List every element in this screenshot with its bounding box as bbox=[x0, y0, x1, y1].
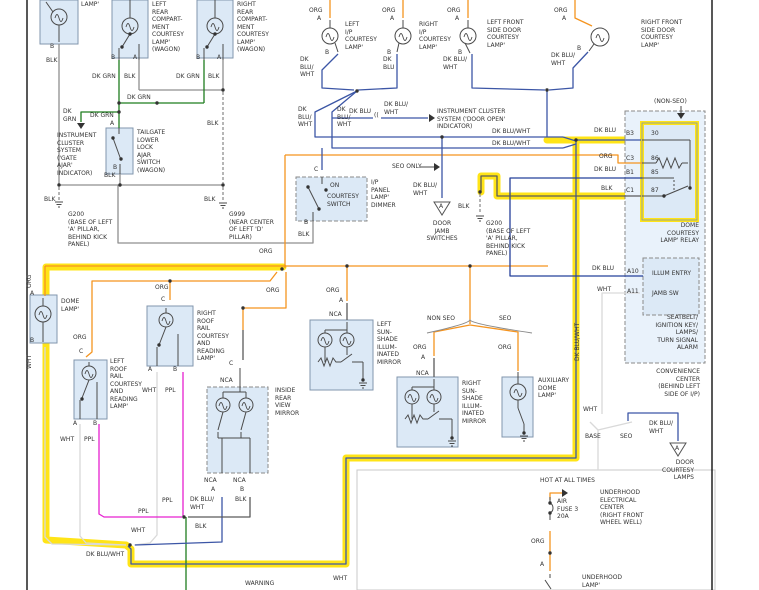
junction-dot bbox=[662, 194, 665, 197]
diagram-label: NON SEO bbox=[427, 315, 455, 323]
diagram-label: ORG bbox=[413, 344, 427, 352]
diagram-label: A bbox=[73, 420, 77, 428]
diagram-label: DOME LAMP' bbox=[61, 298, 79, 313]
diagram-label: 86 bbox=[651, 155, 659, 163]
diagram-label: BLK bbox=[235, 496, 246, 504]
diagram-label: A bbox=[439, 203, 443, 211]
diagram-label: B bbox=[325, 49, 329, 57]
diagram-label: BLK bbox=[601, 185, 612, 193]
diagram-label: C bbox=[79, 348, 83, 356]
arrow-icon bbox=[434, 163, 440, 171]
wire bbox=[590, 422, 598, 430]
junction-dot bbox=[80, 397, 83, 400]
diagram-label: A bbox=[148, 366, 152, 374]
diagram-label: AUXILIARY DOME LAMP' bbox=[538, 377, 569, 400]
component-internal bbox=[397, 43, 399, 52]
diagram-label: DK GRN bbox=[127, 94, 151, 102]
diagram-label: C bbox=[161, 296, 165, 304]
dashed-component-box bbox=[207, 387, 268, 473]
diagram-label: DK BLU/ WHT bbox=[384, 101, 408, 116]
diagram-label: C bbox=[229, 360, 233, 368]
diagram-label: WHT bbox=[26, 355, 34, 369]
wiring-diagram-canvas bbox=[0, 0, 759, 590]
blank-panel bbox=[357, 470, 715, 590]
diagram-label: A bbox=[317, 15, 321, 23]
diagram-label: RIGHT FRONT SIDE DOOR COURTESY LAMP' bbox=[641, 19, 682, 49]
diagram-label: UNDERHOOD LAMP' bbox=[582, 574, 622, 589]
diagram-label: BASE bbox=[585, 433, 601, 441]
diagram-label: ORG bbox=[599, 153, 613, 161]
junction-dot bbox=[213, 32, 216, 35]
diagram-label: B3 bbox=[626, 130, 634, 138]
junction-dot bbox=[345, 264, 348, 267]
diagram-label: RIGHT ROOF RAIL COURTESY AND READING LAM… bbox=[197, 310, 229, 363]
diagram-label: SEATBELT/ IGNITION KEY/ LAMPS/ TURN SIGN… bbox=[655, 314, 698, 352]
diagram-label: LEFT ROOF RAIL COURTESY AND READING LAMP… bbox=[110, 358, 142, 411]
diagram-label: NCA bbox=[416, 370, 429, 378]
dashed-component-box bbox=[643, 258, 699, 315]
arrow-icon bbox=[77, 123, 85, 129]
junction-dot bbox=[120, 45, 123, 48]
diagram-label: INSTRUMENT CLUSTER SYSTEM ('GATE AJAR' I… bbox=[57, 132, 96, 177]
wiring-diagram-page: LAMP'BBLKLEFT REAR COMPART- MENT COURTES… bbox=[0, 0, 759, 590]
junction-dot bbox=[155, 101, 158, 104]
diagram-label: B bbox=[240, 486, 244, 494]
junction-dot bbox=[361, 378, 364, 381]
diagram-label: B bbox=[111, 54, 115, 62]
diagram-label: B bbox=[577, 45, 581, 53]
diagram-label: BLK bbox=[207, 120, 218, 128]
diagram-label: (( bbox=[374, 112, 379, 120]
diagram-label: BLK bbox=[124, 73, 135, 81]
diagram-label: DK BLU bbox=[383, 56, 395, 71]
diagram-label: RIGHT REAR COMPART- MENT COURTESY LAMP' … bbox=[237, 1, 269, 54]
diagram-label: WHT bbox=[583, 406, 597, 414]
diagram-label: DK GRN bbox=[176, 73, 200, 81]
diagram-label: BLK bbox=[298, 231, 309, 239]
diagram-label: WARNING bbox=[245, 580, 274, 588]
diagram-label: A bbox=[217, 54, 221, 62]
diagram-label: I/P PANEL LAMP' DIMMER bbox=[371, 179, 396, 209]
arrow-icon bbox=[429, 114, 435, 122]
junction-dot bbox=[118, 183, 121, 186]
diagram-label: DK BLU/ WHT bbox=[300, 56, 314, 79]
diagram-label: 85 bbox=[651, 169, 659, 177]
component-internal bbox=[589, 44, 594, 51]
wire bbox=[285, 155, 642, 163]
diagram-label: C1 bbox=[626, 187, 634, 195]
diagram-label: BLK bbox=[195, 523, 206, 531]
diagram-label: ORG bbox=[326, 287, 340, 295]
diagram-label: DK BLU/ WHT bbox=[413, 182, 437, 197]
diagram-label: WHT bbox=[60, 436, 74, 444]
diagram-label: DK GRN bbox=[63, 108, 76, 123]
lamp-filament-icon bbox=[596, 35, 604, 42]
diagram-label: G200 (BASE OF LEFT 'A' PILLAR, BEHIND KI… bbox=[68, 211, 112, 249]
diagram-label: ILLUM ENTRY bbox=[652, 270, 691, 278]
junction-dot bbox=[221, 183, 224, 186]
junction-dot bbox=[182, 515, 185, 518]
junction-dot bbox=[168, 279, 171, 282]
diagram-label: B bbox=[304, 219, 308, 227]
diagram-label: A bbox=[211, 486, 215, 494]
diagram-label: (NON-SEO) bbox=[654, 98, 687, 106]
component-box bbox=[147, 306, 193, 366]
diagram-label: DK GRN bbox=[92, 73, 116, 81]
junction-dot bbox=[117, 101, 120, 104]
diagram-label: BLK bbox=[104, 172, 115, 180]
diagram-label: WHT bbox=[131, 527, 145, 535]
diagram-label: B bbox=[196, 54, 200, 62]
diagram-label: DK BLU/WHT bbox=[574, 323, 582, 361]
diagram-label: A bbox=[133, 54, 137, 62]
diagram-label: DK BLU/ WHT bbox=[298, 106, 312, 129]
diagram-label: A bbox=[339, 297, 343, 305]
diagram-label: A bbox=[455, 15, 459, 23]
junction-dot bbox=[280, 267, 283, 270]
diagram-label: ORG bbox=[309, 7, 323, 15]
diagram-label: BLK bbox=[44, 196, 55, 204]
wire bbox=[118, 185, 313, 243]
diagram-label: BLK bbox=[46, 57, 57, 65]
diagram-label: AIR FUSE 3 20A bbox=[557, 498, 578, 521]
diagram-label: PPL bbox=[162, 497, 173, 505]
diagram-label: INSIDE REAR VIEW MIRROR bbox=[275, 387, 299, 417]
diagram-label: DOOR JAMB SWITCHES bbox=[426, 220, 457, 243]
diagram-label: LEFT FRONT SIDE DOOR COURTESY LAMP' bbox=[487, 19, 524, 49]
diagram-label: ORG bbox=[382, 7, 396, 15]
junction-dot bbox=[324, 188, 327, 191]
diagram-label: BLK bbox=[458, 203, 469, 211]
diagram-label: A bbox=[110, 120, 114, 128]
wire bbox=[434, 325, 470, 356]
diagram-label: TAILGATE LOWER LOCK AJAR SWITCH (WAGON) bbox=[137, 129, 165, 174]
diagram-label: G200 (BASE OF LEFT 'A' PILLAR, BEHIND KI… bbox=[486, 220, 530, 258]
diagram-label: DK BLU bbox=[594, 127, 616, 135]
junction-dot bbox=[157, 343, 160, 346]
diagram-label: ORG bbox=[531, 538, 545, 546]
junction-dot bbox=[57, 183, 60, 186]
diagram-label: DK BLU/ WHT bbox=[443, 56, 467, 71]
wire bbox=[472, 54, 545, 90]
diagram-label: ON bbox=[330, 182, 339, 190]
diagram-label: SEO bbox=[499, 315, 511, 323]
diagram-label: WHT bbox=[597, 286, 611, 294]
diagram-label: DK BLU/ WHT bbox=[190, 496, 214, 511]
diagram-label: PPL bbox=[165, 387, 176, 395]
junction-dot bbox=[205, 45, 208, 48]
diagram-label: ORG bbox=[73, 334, 87, 342]
junction-dot bbox=[440, 135, 443, 138]
junction-dot bbox=[111, 136, 114, 139]
diagram-label: B bbox=[173, 366, 177, 374]
wire bbox=[598, 422, 632, 430]
junction-dot bbox=[306, 185, 309, 188]
diagram-label: CONVENIENCE CENTER (BEHIND LEFT SIDE OF … bbox=[656, 368, 700, 398]
junction-dot bbox=[548, 551, 551, 554]
junction-dot bbox=[478, 190, 481, 193]
diagram-label: A bbox=[390, 15, 394, 23]
diagram-label: NCA bbox=[204, 477, 217, 485]
diagram-label: LEFT SUN- SHADE ILLUM- INATED MIRROR bbox=[377, 321, 401, 366]
diagram-label: HOT AT ALL TIMES bbox=[540, 477, 595, 485]
junction-dot bbox=[548, 501, 551, 504]
diagram-label: DK BLU/WHT bbox=[86, 551, 124, 559]
junction-dot bbox=[545, 88, 548, 91]
diagram-label: ORG bbox=[266, 287, 280, 295]
diagram-label: DK BLU bbox=[594, 166, 616, 174]
diagram-label: B bbox=[30, 337, 34, 345]
diagram-label: LAMP' bbox=[81, 1, 99, 9]
diagram-label: NCA bbox=[329, 311, 342, 319]
diagram-label: ORG bbox=[447, 7, 461, 15]
diagram-label: A bbox=[540, 561, 544, 569]
lamp-filament-icon bbox=[464, 34, 472, 41]
diagram-label: G999 (NEAR CENTER OF LEFT 'D' PILLAR) bbox=[229, 211, 274, 241]
junction-dot bbox=[355, 89, 358, 92]
lamp-filament-icon bbox=[399, 34, 407, 41]
diagram-label: RIGHT I/P COURTESY LAMP' bbox=[419, 21, 451, 51]
diagram-label: ORG bbox=[498, 344, 512, 352]
diagram-label: DK BLU/ WHT bbox=[649, 420, 673, 435]
diagram-label: A bbox=[421, 354, 425, 362]
junction-dot bbox=[117, 110, 120, 113]
component-box bbox=[74, 360, 107, 419]
diagram-label: DK BLU/WHT bbox=[492, 140, 530, 148]
junction-dot bbox=[522, 431, 525, 434]
diagram-label: COURTESY SWITCH bbox=[327, 193, 359, 208]
diagram-label: A11 bbox=[627, 288, 639, 296]
diagram-label: WHT bbox=[142, 387, 156, 395]
junction-dot bbox=[128, 32, 131, 35]
junction-dot bbox=[688, 186, 691, 189]
diagram-label: DK BLU bbox=[349, 108, 371, 116]
diagram-label: B bbox=[93, 420, 97, 428]
diagram-label: DOOR COURTESY LAMPS bbox=[662, 459, 694, 482]
diagram-label: LEFT REAR COMPART- MENT COURTESY LAMP' (… bbox=[152, 1, 184, 54]
diagram-label: C3 bbox=[626, 155, 634, 163]
highlight-trace bbox=[481, 176, 641, 196]
diagram-label: DOME COURTESY LAMP' RELAY bbox=[660, 222, 699, 245]
junction-dot bbox=[548, 511, 551, 514]
diagram-label: A bbox=[675, 445, 679, 453]
diagram-label: PPL bbox=[84, 436, 95, 444]
component-internal bbox=[335, 43, 338, 52]
diagram-label: UNDERHOOD ELECTRICAL CENTER (RIGHT FRONT… bbox=[600, 489, 644, 527]
diagram-label: NCA bbox=[233, 477, 246, 485]
diagram-label: WHT bbox=[333, 575, 347, 583]
diagram-label: BLK bbox=[204, 196, 215, 204]
diagram-label: DK BLU/WHT bbox=[492, 128, 530, 136]
diagram-label: ORG bbox=[155, 284, 169, 292]
wire bbox=[322, 54, 354, 90]
diagram-label: JAMB SW bbox=[652, 290, 679, 298]
diagram-label: B bbox=[50, 43, 54, 51]
diagram-label: SEO bbox=[620, 433, 632, 441]
junction-dot bbox=[119, 157, 122, 160]
junction-dot bbox=[128, 543, 131, 546]
diagram-label: PPL bbox=[138, 508, 149, 516]
diagram-label: ORG bbox=[554, 7, 568, 15]
diagram-label: 30 bbox=[651, 130, 659, 138]
junction-dot bbox=[574, 138, 577, 141]
junction-dot bbox=[450, 436, 453, 439]
diagram-label: A bbox=[562, 15, 566, 23]
diagram-label: SEO ONLY bbox=[392, 163, 422, 171]
lamp-filament-icon bbox=[326, 34, 334, 41]
diagram-label: LEFT I/P COURTESY LAMP' bbox=[345, 21, 377, 51]
wire bbox=[575, 0, 592, 26]
diagram-label: B bbox=[113, 164, 117, 172]
diagram-label: DK BLU bbox=[592, 265, 614, 273]
diagram-label: ORG bbox=[26, 274, 34, 288]
junction-dot bbox=[468, 264, 471, 267]
diagram-label: B1 bbox=[626, 169, 634, 177]
diagram-label: RIGHT SUN- SHADE ILLUM- INATED MIRROR bbox=[462, 380, 486, 425]
diagram-label: BLK bbox=[208, 73, 219, 81]
diagram-label: NCA bbox=[220, 377, 233, 385]
diagram-label: A bbox=[30, 290, 34, 298]
diagram-label: C bbox=[314, 166, 318, 174]
diagram-label: DK BLU/ WHT bbox=[551, 52, 575, 67]
diagram-label: DK GRN bbox=[90, 112, 114, 120]
diagram-label: 87 bbox=[651, 187, 659, 195]
diagram-label: A10 bbox=[627, 268, 639, 276]
diagram-label: ORG bbox=[259, 248, 273, 256]
junction-dot bbox=[317, 207, 320, 210]
component-internal bbox=[465, 43, 470, 53]
junction-dot bbox=[221, 88, 224, 91]
junction-dot bbox=[241, 306, 244, 309]
